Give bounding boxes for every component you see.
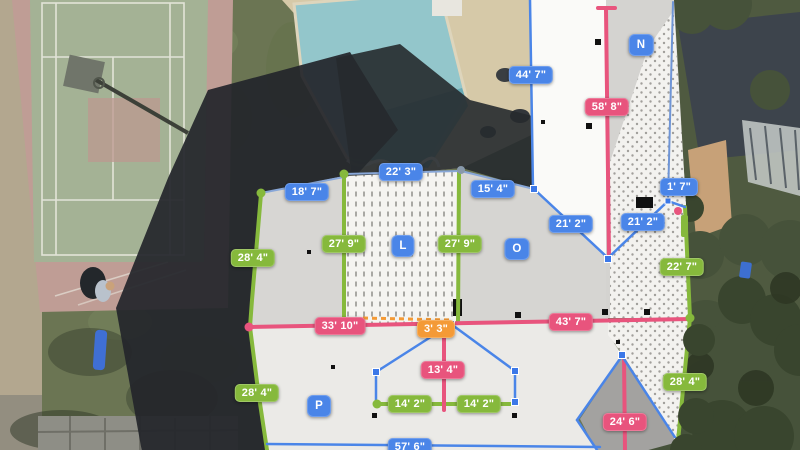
measurement-badge[interactable]: 27' 9" [438, 235, 482, 253]
facet-label[interactable]: O [504, 238, 529, 260]
facet-label[interactable]: L [391, 235, 414, 257]
measurement-badge[interactable]: 1' 7" [660, 178, 698, 196]
measurement-badge[interactable]: 33' 10" [315, 317, 366, 335]
measurement-badge[interactable]: 27' 9" [322, 235, 366, 253]
measurement-badge[interactable]: 14' 2" [388, 395, 432, 413]
measurement-badge[interactable]: 28' 4" [235, 384, 279, 402]
measurement-badge-layer: 44' 7"58' 8"22' 3"18' 7"15' 4"1' 7"21' 2… [0, 0, 800, 450]
measurement-badge[interactable]: 15' 4" [471, 180, 515, 198]
measurement-badge[interactable]: 43' 7" [549, 313, 593, 331]
measurement-badge[interactable]: 22' 3" [379, 163, 423, 181]
facet-label[interactable]: N [629, 34, 654, 56]
facet-label[interactable]: P [307, 395, 331, 417]
measurement-badge[interactable]: 28' 4" [231, 249, 275, 267]
measurement-badge[interactable]: 58' 8" [585, 98, 629, 116]
measurement-badge[interactable]: 21' 2" [549, 215, 593, 233]
aerial-roof-measurement-view: 44' 7"58' 8"22' 3"18' 7"15' 4"1' 7"21' 2… [0, 0, 800, 450]
measurement-badge[interactable]: 44' 7" [509, 66, 553, 84]
measurement-badge[interactable]: 21' 2" [621, 213, 665, 231]
measurement-badge[interactable]: 22' 7" [660, 258, 704, 276]
measurement-badge[interactable]: 18' 7" [285, 183, 329, 201]
measurement-badge[interactable]: 28' 4" [663, 373, 707, 391]
measurement-badge[interactable]: 24' 6" [603, 413, 647, 431]
measurement-badge[interactable]: 14' 2" [457, 395, 501, 413]
measurement-badge[interactable]: 3' 3" [417, 320, 455, 338]
measurement-badge[interactable]: 57' 6" [388, 438, 432, 450]
measurement-badge[interactable]: 13' 4" [421, 361, 465, 379]
